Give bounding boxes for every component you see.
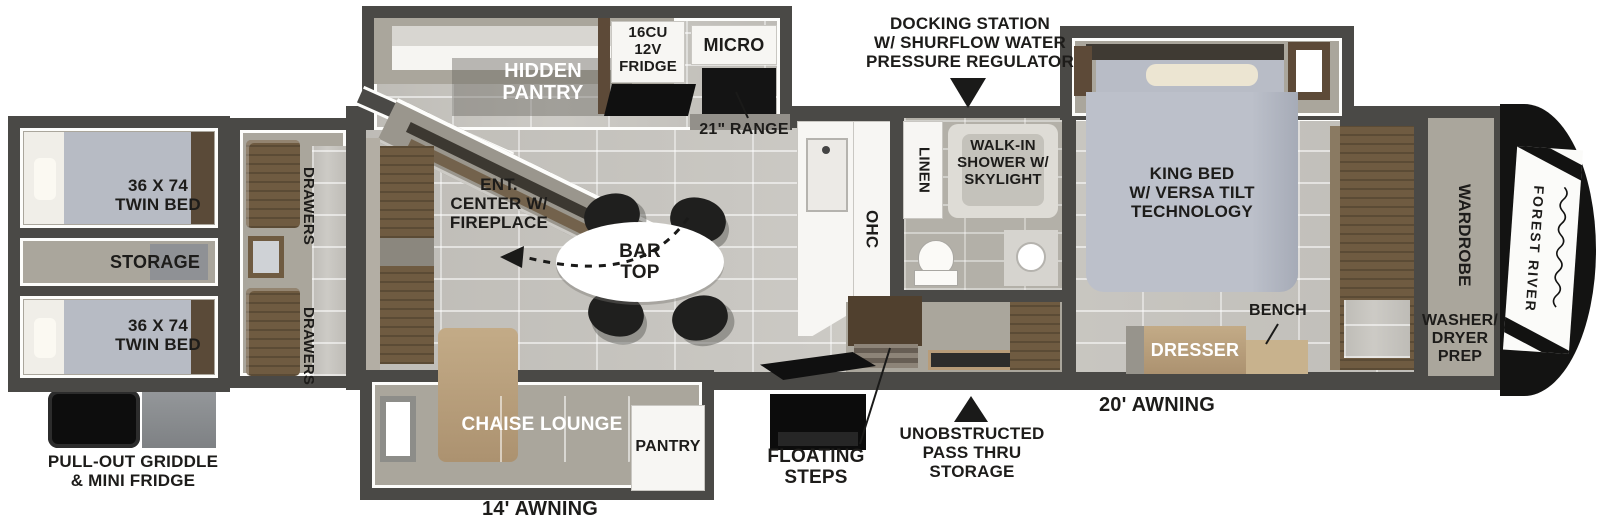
range-cooktop [702, 68, 776, 114]
chaise-label: CHAISE LOUNGE [452, 414, 632, 435]
linen-label: LINEN [915, 147, 932, 193]
ohc-label: OHC [862, 210, 881, 248]
drawers-top-label: DRAWERS [296, 150, 316, 262]
pantry-label: PANTRY [630, 438, 706, 456]
twin-bed-bottom-pillow [34, 318, 56, 358]
fridge-front [604, 84, 696, 116]
pull-out-griddle [48, 390, 140, 448]
vanity-sink [1016, 242, 1046, 272]
corridor-cabinet [1010, 302, 1060, 370]
king-bed-label: KING BED W/ VERSA TILT TECHNOLOGY [1102, 164, 1282, 221]
cap-band: FOREST RIVER [1503, 146, 1583, 354]
micro-label: MICRO [704, 35, 765, 55]
wall-bedroom-left [1062, 118, 1076, 376]
storage-hatch [928, 350, 1020, 370]
left-cabinet-upper [380, 146, 434, 238]
fridge-label: 16CU 12V FRIDGE [612, 25, 684, 75]
bar-top-label: BAR TOP [619, 241, 661, 284]
floating-steps-label: FLOATING STEPS [736, 446, 896, 489]
rv-floorplan: PULL-OUT GRIDDLE & MINI FRIDGE 36 X 74 T… [0, 0, 1600, 530]
twin-bed-bottom-label: 36 X 74 TWIN BED [96, 316, 220, 354]
closet-floor-patch [1344, 300, 1410, 358]
bar-top: BAR TOP [556, 222, 724, 302]
drawer-unit-bottom [246, 288, 300, 376]
chaise-window [380, 396, 416, 462]
range-label: 21" RANGE [688, 121, 800, 139]
ent-center-label: ENT. CENTER W/ FIREPLACE [414, 175, 584, 232]
passthru-label: UNOBSTRUCTED PASS THRU STORAGE [886, 424, 1058, 481]
left-cabinet-lower [380, 266, 434, 364]
toilet-tank [914, 270, 958, 286]
faucet [822, 146, 830, 154]
drawers-room-tile-strip [312, 146, 346, 376]
twin-bed-top-pillow [34, 158, 56, 200]
storage-label: STORAGE [90, 252, 220, 272]
awning-rear-label: 14' AWNING [440, 498, 640, 520]
drawer-unit-top [246, 140, 300, 228]
floating-steps-cabinet [848, 296, 922, 346]
mini-fridge [142, 388, 216, 448]
front-cap: FOREST RIVER [1500, 104, 1596, 396]
passthru-arrow-icon [954, 396, 988, 422]
shower-label: WALK-IN SHOWER W/ SKYLIGHT [942, 138, 1064, 188]
twin-bed-top-label: 36 X 74 TWIN BED [96, 176, 220, 214]
dresser-label: DRESSER [1151, 340, 1239, 360]
mirror [248, 236, 284, 278]
drawers-bottom-label: DRAWERS [296, 290, 316, 402]
brand-signature-graphic [1546, 185, 1575, 316]
washer-dryer-label: WASHER/ DRYER PREP [1422, 312, 1498, 366]
hidden-pantry-label: HIDDEN PANTRY [468, 60, 618, 105]
cap-stripe-bottom [1503, 313, 1583, 354]
king-bed-pillow [1146, 64, 1258, 86]
left-wall-ledge [366, 138, 380, 372]
dresser-back [1126, 326, 1144, 374]
microwave-box: MICRO [692, 26, 776, 64]
bench [1246, 340, 1308, 374]
bench-label: BENCH [1238, 302, 1318, 320]
left-cabinet-mid [380, 238, 434, 266]
entry-step-lower [778, 432, 858, 446]
wall-bath-left [890, 118, 904, 302]
wall-left [346, 106, 366, 390]
dresser: DRESSER [1144, 326, 1246, 374]
docking-arrow-icon [950, 78, 986, 108]
awning-front-label: 20' AWNING [1072, 394, 1242, 416]
linen-closet: LINEN [904, 122, 942, 218]
wardrobe-label: WARDROBE [1448, 150, 1474, 320]
docking-station-label: DOCKING STATION W/ SHURFLOW WATER PRESSU… [810, 14, 1130, 71]
griddle-label: PULL-OUT GRIDDLE & MINI FRIDGE [28, 452, 238, 490]
